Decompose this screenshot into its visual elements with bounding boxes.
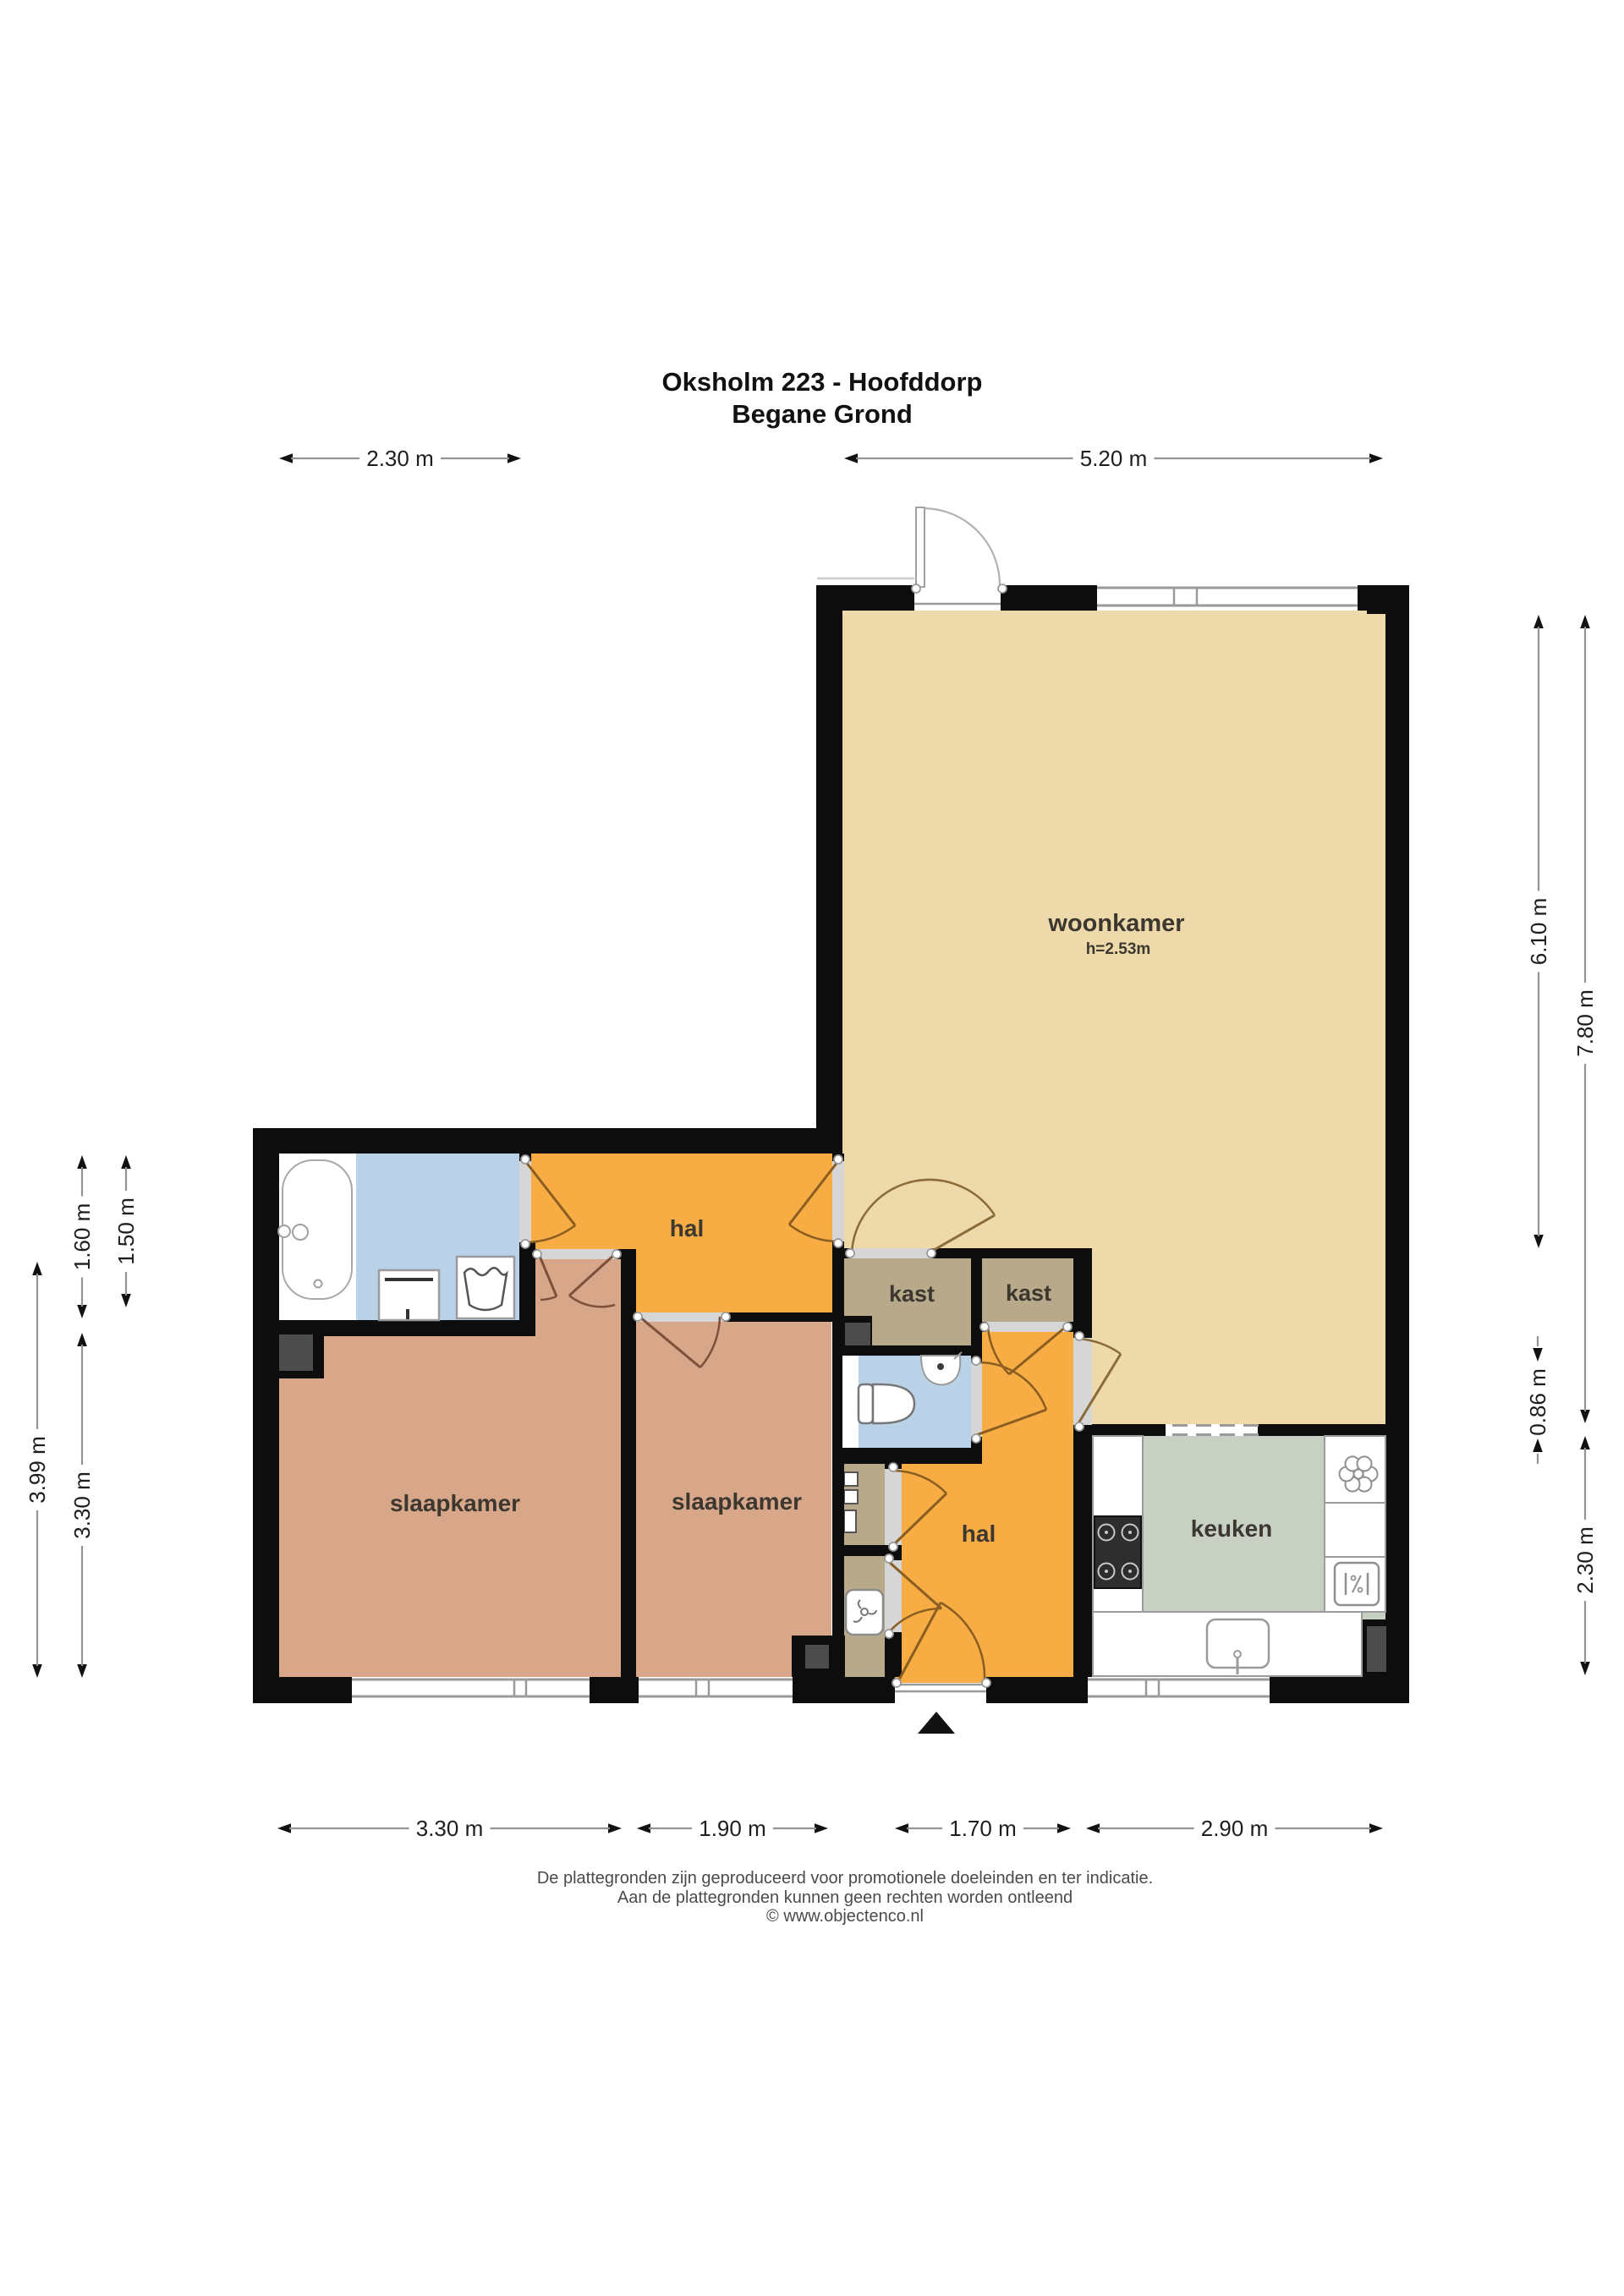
svg-text:slaapkamer: slaapkamer	[672, 1488, 802, 1515]
svg-text:h=2.53m: h=2.53m	[1086, 940, 1151, 958]
svg-text:5.20 m: 5.20 m	[1080, 446, 1148, 471]
svg-text:1.70 m: 1.70 m	[949, 1816, 1017, 1841]
svg-text:6.10 m: 6.10 m	[1526, 898, 1551, 966]
svg-text:2.90 m: 2.90 m	[1201, 1816, 1269, 1841]
svg-text:3.99 m: 3.99 m	[25, 1436, 50, 1504]
svg-text:3.30 m: 3.30 m	[69, 1471, 95, 1539]
svg-text:1.60 m: 1.60 m	[69, 1203, 95, 1271]
svg-text:hal: hal	[962, 1521, 996, 1547]
svg-text:Oksholm 223 - Hoofddorp: Oksholm 223 - Hoofddorp	[662, 367, 983, 397]
svg-text:kast: kast	[1006, 1280, 1051, 1306]
svg-text:2.30 m: 2.30 m	[366, 446, 434, 471]
svg-text:De plattegronden zijn geproduc: De plattegronden zijn geproduceerd voor …	[537, 1869, 1153, 1888]
svg-text:keuken: keuken	[1191, 1515, 1273, 1542]
svg-text:1.50 m: 1.50 m	[113, 1197, 139, 1265]
svg-text:2.30 m: 2.30 m	[1572, 1526, 1598, 1594]
svg-text:hal: hal	[670, 1215, 704, 1241]
svg-text:1.90 m: 1.90 m	[699, 1816, 766, 1841]
svg-text:0.86 m: 0.86 m	[1525, 1368, 1550, 1436]
svg-text:woonkamer: woonkamer	[1047, 910, 1184, 937]
svg-text:© www.objectenco.nl: © www.objectenco.nl	[766, 1907, 924, 1926]
svg-text:slaapkamer: slaapkamer	[390, 1490, 520, 1516]
svg-text:kast: kast	[889, 1281, 935, 1307]
svg-text:3.30 m: 3.30 m	[416, 1816, 484, 1841]
svg-text:Begane Grond: Begane Grond	[732, 399, 913, 429]
svg-text:7.80 m: 7.80 m	[1572, 989, 1598, 1057]
svg-text:Aan de plattegronden kunnen ge: Aan de plattegronden kunnen geen rechten…	[617, 1888, 1073, 1907]
